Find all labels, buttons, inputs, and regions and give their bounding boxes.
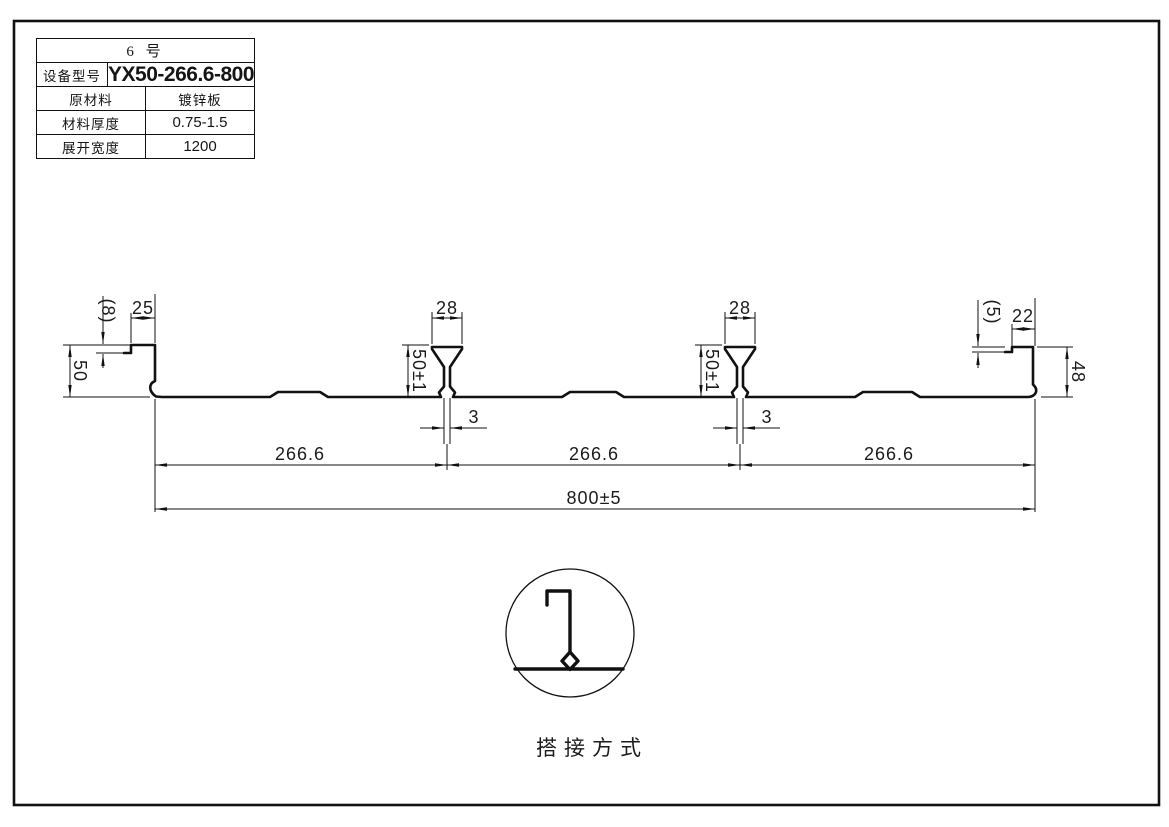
table-title-row: 6 号	[37, 39, 254, 63]
dimension-linework	[63, 294, 1073, 512]
dim-pitch-2: 266.6	[569, 444, 619, 464]
dim-left-lip: (8)	[98, 299, 118, 324]
detail-caption: 搭接方式	[536, 736, 648, 760]
dim-right-lip: (5)	[983, 300, 1003, 325]
dim-overall: 800±5	[567, 488, 622, 508]
table-row-width: 展开宽度 1200	[37, 135, 254, 158]
dim-rib1-top: 28	[436, 298, 458, 318]
dim-pitch-3: 266.6	[864, 444, 914, 464]
drawing-page: (8) 25 50 28 50±1 3 28 50±1 3 22 (5) 48 …	[0, 0, 1169, 827]
dimension-labels: (8) 25 50 28 50±1 3 28 50±1 3 22 (5) 48 …	[70, 298, 1088, 508]
dim-left-height: 50	[70, 360, 90, 382]
table-title: 6 号	[126, 40, 164, 61]
dim-rib2-top: 28	[729, 298, 751, 318]
device-model-value: YX50-266.6-800	[108, 63, 254, 86]
detail-overlap-edge	[547, 591, 570, 652]
thickness-label: 材料厚度	[37, 111, 146, 134]
table-row-thickness: 材料厚度 0.75-1.5	[37, 111, 254, 135]
dim-rib2-stem: 3	[761, 407, 772, 427]
detail-rib-crimp	[562, 652, 578, 670]
raw-material-value: 镀锌板	[146, 87, 254, 110]
raw-material-label: 原材料	[37, 87, 146, 110]
dim-pitch-1: 266.6	[275, 444, 325, 464]
dim-right-flange: 22	[1012, 306, 1034, 326]
dim-rib2-height: 50±1	[702, 349, 722, 393]
coil-width-value: 1200	[146, 135, 254, 158]
cross-section-profile	[124, 345, 1036, 397]
dim-left-flange: 25	[132, 298, 154, 318]
lap-joint-detail	[506, 569, 634, 697]
coil-width-label: 展开宽度	[37, 135, 146, 158]
dim-rib1-height: 50±1	[409, 349, 429, 393]
dim-rib1-stem: 3	[468, 407, 479, 427]
device-model-label: 设备型号	[37, 63, 108, 86]
spec-table: 6 号 设备型号 YX50-266.6-800 原材料 镀锌板 材料厚度 0.7…	[36, 38, 255, 159]
table-row-model: 设备型号 YX50-266.6-800	[37, 63, 254, 87]
dim-right-height: 48	[1068, 361, 1088, 383]
table-row-material: 原材料 镀锌板	[37, 87, 254, 111]
profile-outline	[124, 345, 1036, 397]
thickness-value: 0.75-1.5	[146, 111, 254, 134]
